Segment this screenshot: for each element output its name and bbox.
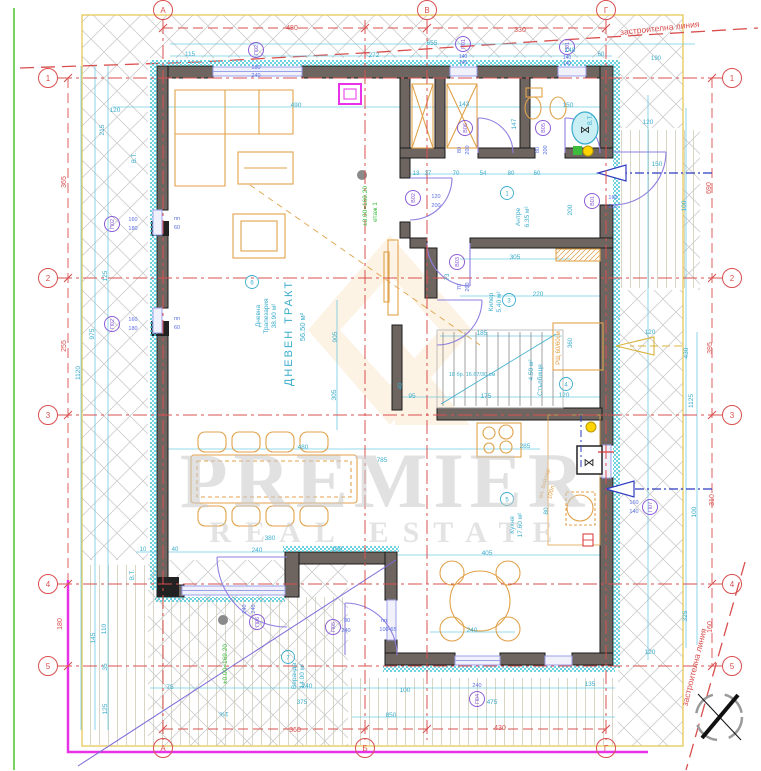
column-marker [218, 615, 228, 625]
dimension-label: 140 [629, 509, 638, 515]
sofa [175, 90, 293, 186]
dim-red: 255 [61, 340, 68, 352]
dimension-label: 200 [543, 145, 549, 154]
dim-red: 690 [706, 182, 713, 194]
building-line-label: застроителна линия [680, 627, 709, 707]
room-number-label: 6 [250, 280, 254, 286]
opening-tag-label: В02 [411, 193, 417, 203]
opening-tag-label: В05 [541, 123, 547, 133]
grid-bubble-label: Б [362, 744, 367, 753]
room-area: 56.50 м² [298, 312, 307, 341]
dimension-label: 150 [563, 102, 574, 109]
room-area: 4.50 м² [528, 359, 535, 381]
north-arrow-icon [696, 694, 742, 740]
round-table [450, 571, 510, 631]
dimension-label: 100 [400, 687, 411, 694]
dimension-label: 100-65 [379, 627, 396, 633]
dimension-label: 80 [508, 171, 515, 177]
dimension-label: 325 [682, 610, 689, 621]
dimension-label: 210 [608, 204, 617, 210]
dimension-label: 60 [174, 225, 180, 231]
opening-tag-label: П04 [475, 694, 481, 704]
chair [440, 617, 464, 641]
dimension-label: 140 [459, 60, 468, 66]
grid-bubble-label: 5 [46, 662, 51, 671]
veranda-deck [86, 597, 345, 745]
dimension-label: 240 [242, 604, 248, 613]
grid-bubble-label: 1 [46, 74, 51, 83]
dimension-label: 490 [291, 102, 302, 109]
grid-bubble-label: 2 [46, 274, 51, 283]
dim-red: 180 [57, 618, 64, 630]
grid-bubble-label: 3 [46, 411, 51, 420]
dimension-label: 305 [510, 254, 521, 261]
grid-bubble-label: Г [604, 6, 609, 15]
chair [440, 561, 464, 585]
dimension-label: 375 [297, 699, 308, 706]
watermark-line2: REAL ESTATE [209, 516, 566, 549]
dimension-label: 305 [331, 389, 338, 400]
dimension-label: 240 [467, 627, 478, 634]
dimension-label: 145 [90, 632, 97, 643]
watermark-line1: PREMIER [180, 437, 590, 524]
opening-tag-label: В03 [455, 257, 461, 267]
dimension-label: 185 [477, 330, 488, 337]
dimension-label: 143 [459, 101, 470, 108]
dimension-label: 215 [99, 124, 106, 135]
dimension-label: 120 [559, 392, 570, 399]
dimension-label: 95 [408, 393, 416, 400]
dim-red: 430 [494, 725, 506, 732]
room-number-label: 3 [507, 298, 511, 304]
dimension-label: 125 [102, 270, 109, 281]
grid-bubble-label: Г [604, 744, 609, 753]
dimension-label: 140 [563, 61, 572, 67]
grid-bubble-label: 2 [730, 274, 735, 283]
room-name: Дневна [255, 304, 262, 327]
dim-red: 480 [286, 25, 298, 32]
dimension-label: 80 [344, 618, 350, 624]
dimension-label: 160 [629, 500, 638, 506]
dimension-label: 272 [369, 52, 380, 59]
dimension-label: 35 [102, 663, 109, 671]
dim-red: 160 [707, 621, 714, 633]
dimension-label: 180 [128, 226, 137, 232]
room-number-label: 1 [505, 191, 509, 197]
dimension-label: 40 [398, 382, 404, 389]
elevation-label: ±0.00=169.20 [362, 186, 369, 226]
dim-red: 360 [289, 727, 301, 734]
dimension-label: 475 [487, 699, 498, 706]
stair-note: 18 бр. 16.67/30 см [449, 372, 496, 378]
dimension-label: 240 [472, 683, 481, 689]
opening-tag-label: П05 [331, 622, 337, 632]
dimension-label: 148 [565, 47, 576, 54]
floor-label: етаж 1 [372, 202, 379, 222]
dimension-label: 73 [445, 273, 451, 280]
room-name: Стълбище [536, 364, 544, 396]
basin-symbol: ⋈ [580, 125, 590, 136]
dimension-label: 120 [110, 107, 121, 114]
dimension-label: пп [174, 216, 180, 222]
dimension-label: 240 [251, 604, 257, 613]
room-name: Трапезария [263, 298, 270, 334]
opening-tag-label: П07 [648, 502, 654, 512]
room-name: Антре [515, 208, 522, 227]
dimension-label: 120 [643, 119, 654, 126]
opening-tag-label: П02 [110, 219, 116, 229]
dimension-label: 360 [568, 337, 574, 348]
opening-tag-label: П01 [461, 39, 467, 49]
dimension-label: 200 [567, 204, 574, 215]
room-name: Веранда [291, 663, 298, 690]
dimension-label: 70 [453, 171, 460, 177]
room-number-label: 4 [564, 382, 568, 388]
dimension-label: 147 [511, 118, 518, 129]
dimension-label: 160 [128, 317, 137, 323]
switch-box [573, 146, 582, 155]
dimension-label: В.Т. [130, 570, 136, 581]
dimension-label: 180 [251, 65, 260, 71]
lamp-symbol [583, 146, 593, 156]
dimension-label: 13 [413, 171, 420, 177]
dimension-label: 37 [425, 171, 432, 177]
opening-tag-label: П02 [254, 45, 260, 55]
room-area: 5.40 м² [496, 291, 503, 313]
dimension-label: 180 [128, 326, 137, 332]
dim-red: 330 [514, 27, 526, 34]
lamp-symbol [586, 422, 596, 432]
dimension-label: В.Т. [132, 153, 138, 164]
dimension-label: 40 [172, 547, 179, 553]
dimension-label: 80 [535, 147, 541, 153]
room-area: 14.00 м² [299, 663, 306, 689]
room-name: Килер [488, 292, 495, 311]
dim-red: 310 [709, 494, 716, 506]
dimension-label: 80 [457, 147, 463, 153]
dimension-label: 115 [185, 51, 196, 58]
room-name: ДНЕВЕН ТРАКТ [283, 280, 295, 386]
dimension-label: 850 [386, 712, 397, 719]
dimension-label: 160 [608, 195, 617, 201]
dimension-label: 70 [457, 284, 463, 290]
dimension-label: 975 [89, 328, 96, 339]
dimension-label: 240 [341, 628, 350, 634]
dimension-label: 120 [645, 649, 656, 656]
grid-bubble-label: А [160, 6, 166, 15]
dimension-label: 100 [691, 506, 698, 517]
dim-red: 365 [61, 176, 68, 188]
chair [496, 561, 520, 585]
dimension-label: 110 [101, 623, 108, 634]
grid-bubble-label: 1 [730, 74, 735, 83]
chair [496, 617, 520, 641]
grid-bubble-label: 3 [730, 411, 735, 420]
grid-bubble-label: А [160, 744, 166, 753]
opening-tag-label: П06 [255, 617, 261, 627]
dimension-label: 160 [128, 217, 137, 223]
elevation-label: ±0.00=169.20 [222, 644, 229, 684]
dimension-label: В.Т. [588, 115, 594, 126]
dimension-label: 10 [140, 547, 147, 553]
dimension-label: 405 [482, 550, 493, 557]
room-area: 6.35 м² [524, 206, 531, 228]
floor-plan-drawing: 1122334455ААБВГГ П02П01П01П02П02П07П06П0… [0, 0, 761, 771]
dimension-label: пп [381, 618, 387, 624]
dimension-label: 60 [174, 325, 180, 331]
dimension-label: 655 [427, 40, 438, 47]
dimension-label: 200 [465, 282, 471, 291]
dimension-label: 150 [652, 161, 663, 168]
dimension-label: 220 [533, 291, 544, 298]
chimney [339, 84, 361, 104]
dimension-label: 100 [681, 200, 688, 211]
dimension-label: 75 [166, 684, 174, 691]
opening-tag-label: В06 [463, 123, 469, 133]
opening-tag-label: В01 [590, 196, 596, 206]
dimension-label: 430 [683, 347, 690, 358]
grid-bubble-label: В [424, 6, 429, 15]
dimension-label: 190 [651, 56, 662, 62]
panel-label: РЩ 60/60см [556, 331, 562, 364]
dimension-label: 200 [431, 203, 440, 209]
dimension-label: 135 [585, 681, 596, 688]
room-area: 38.90 м² [271, 303, 278, 329]
grid-bubble-label: 5 [730, 662, 735, 671]
floor-plan-page: 1122334455ААБВГГ П02П01П01П02П02П07П06П0… [0, 0, 761, 771]
dimension-label: 200 [465, 145, 471, 154]
dimension-label: 1120 [75, 366, 82, 380]
opening-tag-label: П02 [110, 319, 116, 329]
grid-bubble-label: 4 [46, 580, 51, 589]
dim-red: 395 [707, 342, 714, 354]
dimension-label: 125 [102, 703, 109, 714]
dimension-label: 120 [431, 194, 440, 200]
slope-label: 1% [219, 710, 229, 717]
dimension-label: 54 [480, 171, 487, 177]
grid-bubble-label: 4 [730, 580, 735, 589]
dimension-label: 60 [534, 171, 541, 177]
dimension-label: 60 [598, 52, 605, 58]
dimension-label: 240 [251, 73, 260, 79]
dimension-label: пп [174, 316, 180, 322]
radiator [556, 249, 600, 261]
dimension-label: 120 [645, 329, 656, 336]
dimension-label: 905 [332, 331, 339, 342]
dimension-label: 1125 [688, 394, 695, 408]
dimension-label: 175 [481, 393, 492, 400]
